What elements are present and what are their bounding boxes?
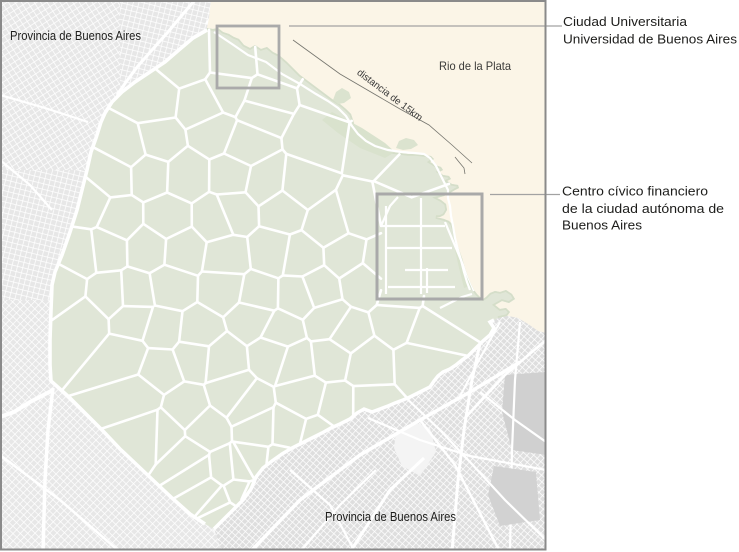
svg-text:Buenos Aires: Buenos Aires [562, 218, 643, 233]
svg-text:Provincia de Buenos Aires: Provincia de Buenos Aires [325, 509, 456, 524]
svg-text:Provincia de Buenos Aires: Provincia de Buenos Aires [10, 28, 141, 43]
svg-text:de la ciudad autónoma de: de la ciudad autónoma de [562, 201, 724, 216]
svg-text:Ciudad Universitaria: Ciudad Universitaria [563, 14, 688, 29]
svg-text:Centro cívico financiero: Centro cívico financiero [562, 184, 708, 199]
svg-text:Universidad de Buenos Aires: Universidad de Buenos Aires [563, 32, 738, 47]
svg-text:Rio de la Plata: Rio de la Plata [439, 59, 511, 73]
